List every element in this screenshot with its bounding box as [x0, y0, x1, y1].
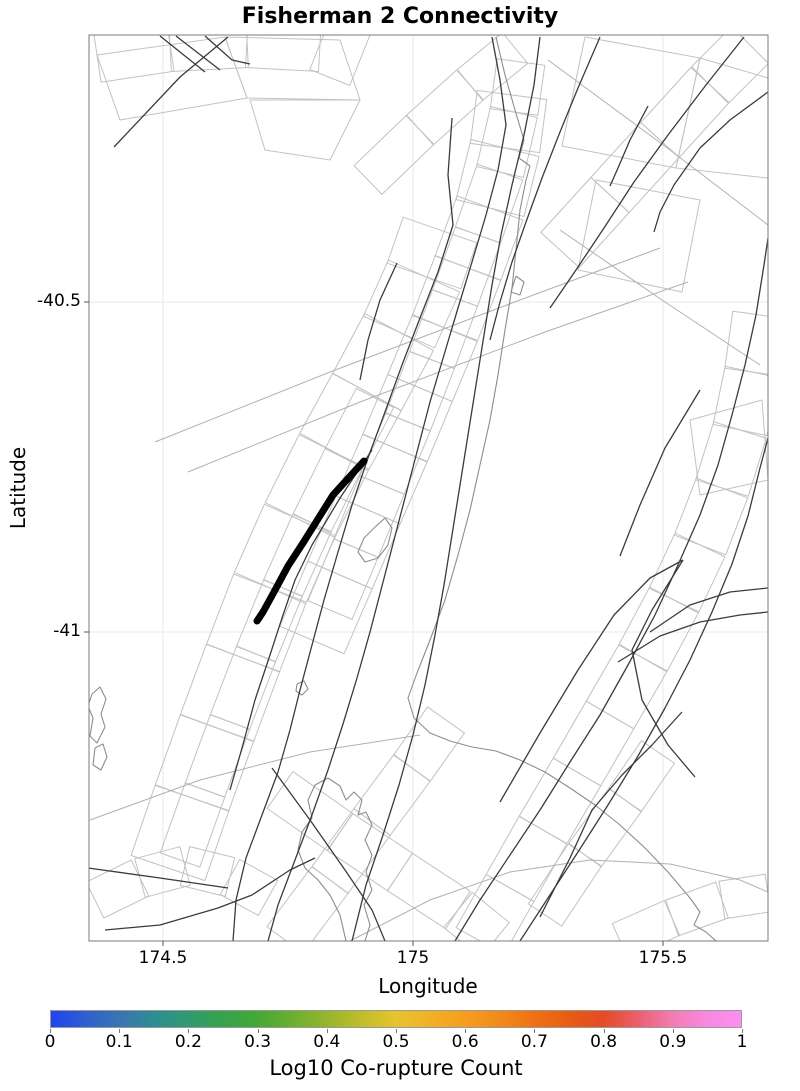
fault-patch-outline: [569, 788, 641, 867]
fault-patch-outline: [308, 539, 378, 620]
fault-patch-outline: [725, 311, 787, 376]
fault-trace: [540, 712, 682, 917]
fault-patch-outline: [609, 741, 675, 812]
colorbar-tick-label: 0.5: [382, 1032, 409, 1052]
coastline: [88, 687, 106, 743]
fault-patch-outline: [388, 315, 478, 402]
patch-boundary-line: [155, 248, 660, 442]
fault-trace: [620, 390, 700, 556]
fault-map: [0, 0, 800, 1091]
colorbar-tick-label: 0.1: [106, 1032, 133, 1052]
colorbar-label: Log10 Co-rupture Count: [269, 1056, 522, 1080]
fault-patch-outline: [674, 478, 747, 555]
fault-patch-outline: [97, 37, 247, 120]
page-title: Fisherman 2 Connectivity: [0, 4, 800, 29]
fault-patch-outline: [386, 351, 455, 430]
fault-patch-outline: [394, 707, 465, 781]
fault-trace: [105, 858, 315, 930]
colorbar-tick-label: 0.8: [590, 1032, 617, 1052]
fault-trace: [230, 450, 372, 790]
fault-patch-outline: [312, 809, 390, 893]
fault-patch-outline: [220, 860, 277, 916]
colorbar-tick-label: 0.6: [452, 1032, 479, 1052]
x-tick-label: 174.5: [139, 948, 188, 968]
fault-trace: [268, 37, 506, 941]
fault-patch-outline: [334, 476, 404, 557]
patch-boundary-line: [90, 735, 420, 820]
x-tick-label: 175: [397, 948, 429, 968]
fault-patch-outline: [363, 260, 459, 348]
fault-patch-outline: [354, 755, 430, 836]
patch-boundary-line: [560, 230, 760, 365]
fault-patch-outline: [363, 375, 453, 462]
fault-patch-outline: [444, 893, 509, 958]
fault-trace: [88, 868, 228, 888]
coastline: [408, 37, 716, 941]
fault-patch-outline: [354, 116, 434, 195]
fault-patch-outline: [676, 58, 768, 178]
fault-trace: [700, 92, 768, 148]
fault-trace: [500, 560, 683, 802]
coastline: [298, 778, 372, 941]
y-tick-label: -40.5: [37, 291, 81, 311]
fault-patch-outline: [250, 100, 360, 160]
fault-trace: [490, 37, 600, 340]
fault-patch-outline: [160, 783, 225, 867]
colorbar-tick-label: 0.9: [659, 1032, 686, 1052]
coastline: [93, 744, 107, 770]
map-content: [86, 13, 787, 959]
y-tick-label: -41: [53, 621, 81, 641]
colorbar: [50, 1010, 742, 1028]
fault-patch-outline: [719, 874, 771, 919]
fault-patch-outline: [713, 366, 779, 435]
colorbar-tick-label: 0.7: [521, 1032, 548, 1052]
fault-trace: [610, 106, 648, 186]
fault-patch-outline: [528, 844, 601, 926]
fault-trace: [352, 37, 540, 941]
fault-patch-outline: [562, 37, 700, 168]
fault-patch-outline: [541, 178, 629, 268]
fault-patch-outline: [280, 561, 372, 654]
fault-patch-outline: [387, 217, 477, 289]
fault-trace: [233, 118, 453, 941]
fault-patch-outline: [591, 123, 679, 213]
fault-patch-outline: [388, 853, 471, 929]
x-axis-label: Longitude: [378, 974, 477, 998]
y-axis-label: Latitude: [6, 447, 30, 529]
connectivity-figure: Fisherman 2 Connectivity Latitude Longit…: [0, 0, 800, 1091]
fault-trace: [520, 438, 768, 941]
plot-border: [89, 35, 768, 941]
colorbar-tick-label: 1: [737, 1032, 748, 1052]
fault-patch-outline: [267, 867, 348, 954]
fault-patch-outline: [210, 647, 275, 730]
x-tick-label: 175.5: [639, 948, 688, 968]
colorbar-tick-label: 0.2: [175, 1032, 202, 1052]
colorbar-tick-label: 0.4: [313, 1032, 340, 1052]
fault-trace: [272, 768, 385, 941]
colorbar-tick-label: 0.3: [244, 1032, 271, 1052]
fault-patch-outline: [578, 180, 700, 292]
patch-boundary-line: [548, 60, 768, 225]
fault-patch-outline: [666, 882, 729, 936]
fault-patch-outline: [180, 644, 279, 741]
fault-trace: [650, 588, 768, 632]
fault-patch-outline: [225, 37, 360, 100]
fault-patch-outline: [553, 701, 634, 786]
fault-patch-outline: [692, 27, 769, 104]
colorbar-tick-label: 0: [45, 1032, 56, 1052]
